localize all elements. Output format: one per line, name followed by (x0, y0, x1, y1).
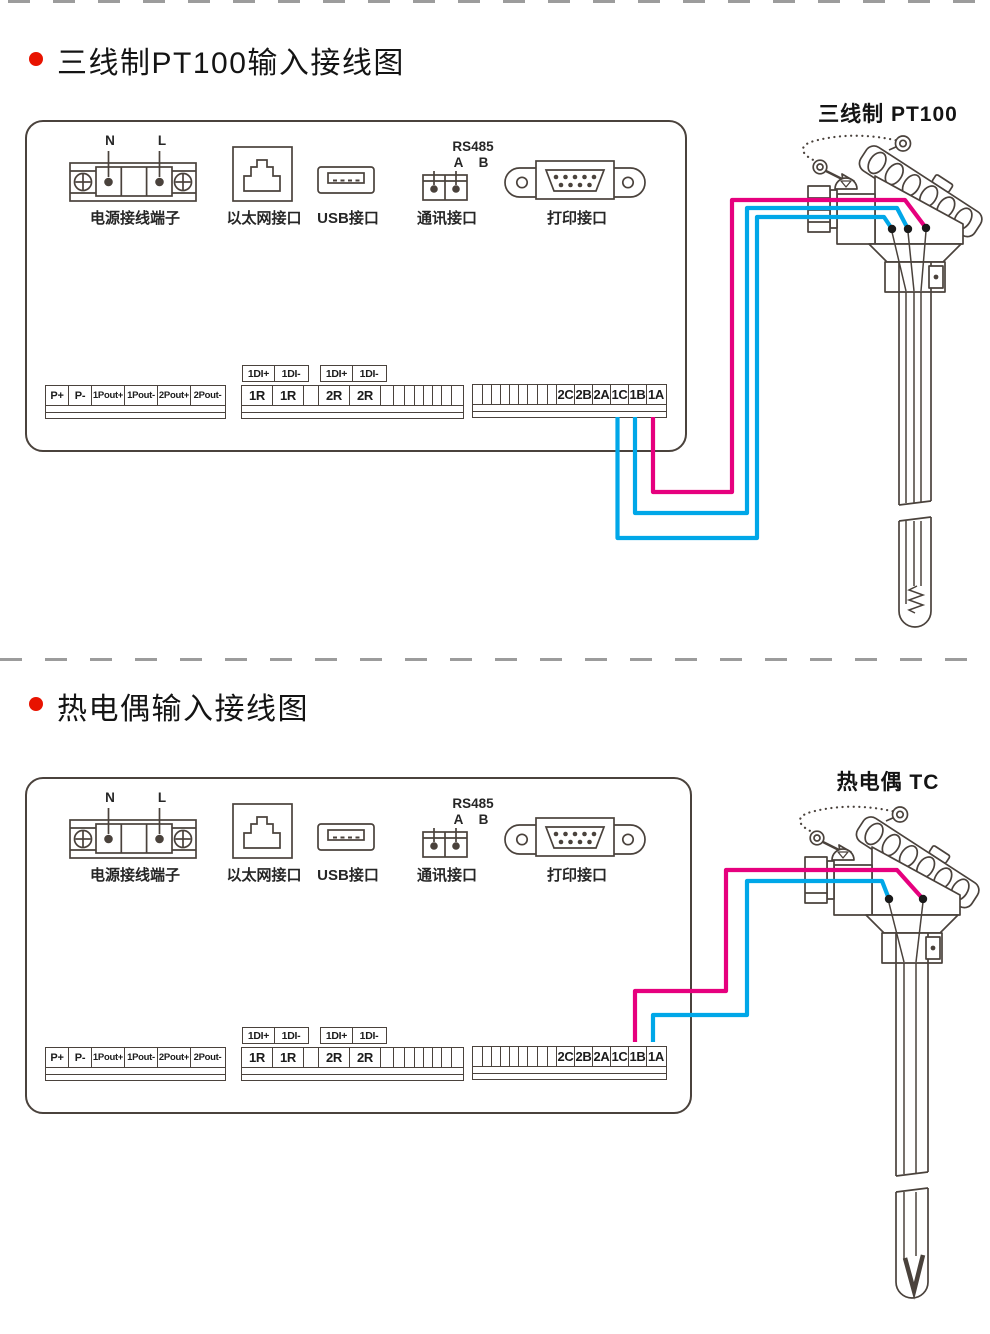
terminal-cell-blank (510, 1047, 519, 1066)
rs485-a-label: A (448, 155, 469, 170)
terminal-cell-blank (473, 1047, 483, 1066)
terminal-cell: 2A (593, 1047, 611, 1066)
terminal-cell-blank (415, 1048, 424, 1067)
terminal-cell-blank (415, 386, 424, 405)
terminal-cell-blank (483, 385, 492, 404)
terminal-cell: 2R (350, 386, 381, 405)
terminal-cell: 2Pout+ (158, 386, 191, 405)
terminal-cell-blank (510, 385, 519, 404)
terminal-cell-blank (424, 1048, 433, 1067)
strip-band (46, 412, 225, 416)
terminal-cell-blank (528, 385, 538, 404)
strip-band (46, 1067, 225, 1074)
sensor2-element-wires (889, 902, 923, 1291)
sensor1-head (803, 135, 990, 627)
terminal-cell-blank (452, 386, 462, 405)
terminal-cell: 2R (350, 1048, 381, 1067)
strip-band (473, 411, 666, 415)
terminal-cell-blank (501, 385, 510, 404)
di-header-cell: 1DI- (353, 366, 385, 381)
di-header-cell: 1DI+ (243, 366, 275, 381)
terminal-cell: 2Pout- (191, 386, 224, 405)
recorder-rear-panel-1: N L RS485 A B 电源接线端子 以太网接口 USB接口 通讯接口 打印… (25, 120, 687, 452)
terminal-cell-blank (442, 1048, 452, 1067)
rs485-b-label: B (473, 155, 494, 170)
sensor1-label: 三线制 PT100 (788, 98, 988, 128)
terminal-cell: 2A (593, 385, 611, 404)
terminal-cell: 2B (575, 385, 593, 404)
terminal-cell: 2Pout- (191, 1048, 224, 1067)
power-l-label: L (150, 133, 174, 148)
di-header-1: 1DI+ 1DI- (242, 365, 309, 382)
strip-band (242, 1067, 463, 1074)
terminal-cell: 1R (242, 386, 273, 405)
di-header-cell: 1DI- (275, 366, 307, 381)
terminal-cell-blank (394, 386, 405, 405)
di-header-1: 1DI+ 1DI- (242, 1027, 309, 1044)
terminal-cell-blank (548, 385, 557, 404)
terminal-strip-relay: 1R 1R 2R 2R (241, 1047, 464, 1081)
terminal-cell: 2C (557, 385, 575, 404)
terminal-cell-blank (492, 1047, 501, 1066)
di-header-cell: 1DI+ (243, 1028, 275, 1043)
terminal-cell-blank (381, 386, 394, 405)
terminal-cell: P- (69, 1048, 92, 1067)
terminal-cell-blank (433, 1048, 442, 1067)
terminal-cell: 1B (629, 385, 647, 404)
rs485-label: RS485 (443, 139, 503, 154)
terminal-strip-input: 2C 2B 2A 1C 1B 1A (472, 384, 667, 418)
terminal-cell-blank (519, 1047, 528, 1066)
di-header-2: 1DI+ 1DI- (320, 365, 387, 382)
strip-band (242, 412, 463, 416)
terminal-cell: 1R (273, 1048, 304, 1067)
sensor-terminal-dots (885, 224, 930, 903)
terminal-cell-blank (304, 386, 319, 405)
power-terminal-label: 电源接线端子 (60, 864, 210, 885)
terminal-cell: 1C (611, 385, 629, 404)
di-header-cell: 1DI+ (321, 1028, 353, 1043)
terminal-cell: 1C (611, 1047, 629, 1066)
power-n-label: N (98, 133, 122, 148)
terminal-cell-blank (473, 385, 483, 404)
recorder-rear-panel-2: N L RS485 A B 电源接线端子 以太网接口 USB接口 通讯接口 打印… (25, 777, 692, 1114)
print-port-label: 打印接口 (502, 207, 652, 228)
wire-1a-magenta (653, 200, 926, 492)
terminal-cell-blank (492, 385, 501, 404)
sensor2-label: 热电偶 TC (788, 766, 988, 796)
terminal-cell: P- (69, 386, 92, 405)
terminal-cell: 1Pout+ (92, 1048, 125, 1067)
rs485-a-label: A (448, 812, 469, 827)
sensor1-element-wires (892, 231, 926, 613)
terminal-strip-input: 2C 2B 2A 1C 1B 1A (472, 1046, 667, 1080)
di-header-cell: 1DI+ (321, 366, 353, 381)
rs485-label: RS485 (443, 796, 503, 811)
terminal-cell-blank (405, 386, 415, 405)
rtd-resistor-symbol (909, 586, 923, 613)
terminal-cell-blank (538, 1047, 548, 1066)
section2-bullet-icon (29, 697, 43, 711)
power-n-label: N (98, 790, 122, 805)
terminal-strip-power-out: P+ P- 1Pout+ 1Pout- 2Pout+ 2Pout- (45, 385, 226, 419)
comm-port-label: 通讯接口 (372, 207, 522, 228)
terminal-cell: 2C (557, 1047, 575, 1066)
terminal-cell: 2Pout+ (158, 1048, 191, 1067)
terminal-cell: 2R (319, 386, 350, 405)
terminal-cell: 1R (273, 386, 304, 405)
thermocouple-junction-symbol (905, 1255, 923, 1291)
top-dashed-border (8, 0, 982, 3)
terminal-cell: 1Pout- (125, 1048, 158, 1067)
terminal-cell-blank (452, 1048, 462, 1067)
terminal-cell-blank (433, 386, 442, 405)
section2-title: 热电偶输入接线图 (57, 684, 309, 728)
wiring-diagram-page: 三线制PT100输入接线图 热电偶输入接线图 三线制 PT100 热电偶 TC … (0, 0, 990, 1334)
rs485-b-label: B (473, 812, 494, 827)
terminal-strip-relay: 1R 1R 2R 2R (241, 385, 464, 419)
terminal-cell: 1Pout+ (92, 386, 125, 405)
strip-band (46, 405, 225, 412)
terminal-cell-blank (442, 386, 452, 405)
power-terminal-label: 电源接线端子 (60, 207, 210, 228)
terminal-cell-blank (538, 385, 548, 404)
terminal-cell: 2B (575, 1047, 593, 1066)
terminal-cell: 1A (647, 385, 665, 404)
terminal-cell: 2R (319, 1048, 350, 1067)
terminal-cell-blank (405, 1048, 415, 1067)
strip-band (473, 1073, 666, 1077)
terminal-cell: 1R (242, 1048, 273, 1067)
terminal-cell-blank (381, 1048, 394, 1067)
section1-title: 三线制PT100输入接线图 (57, 38, 405, 82)
terminal-cell-blank (519, 385, 528, 404)
strip-band (242, 405, 463, 412)
strip-band (473, 404, 666, 411)
di-header-2: 1DI+ 1DI- (320, 1027, 387, 1044)
strip-band (242, 1074, 463, 1078)
power-l-label: L (150, 790, 174, 805)
print-port-label: 打印接口 (502, 864, 652, 885)
terminal-cell-blank (304, 1048, 319, 1067)
strip-band (46, 1074, 225, 1078)
terminal-strip-power-out: P+ P- 1Pout+ 1Pout- 2Pout+ 2Pout- (45, 1047, 226, 1081)
terminal-cell-blank (501, 1047, 510, 1066)
comm-port-label: 通讯接口 (372, 864, 522, 885)
terminal-cell-blank (528, 1047, 538, 1066)
terminal-cell: P+ (46, 386, 69, 405)
terminal-cell-blank (394, 1048, 405, 1067)
terminal-cell-blank (483, 1047, 492, 1066)
sensor2-head (800, 806, 987, 1298)
di-header-cell: 1DI- (353, 1028, 385, 1043)
section-separator (0, 658, 990, 661)
strip-band (473, 1066, 666, 1073)
terminal-cell: 1Pout- (125, 386, 158, 405)
terminal-cell: 1A (647, 1047, 665, 1066)
terminal-cell: 1B (629, 1047, 647, 1066)
di-header-cell: 1DI- (275, 1028, 307, 1043)
terminal-cell: P+ (46, 1048, 69, 1067)
terminal-cell-blank (548, 1047, 557, 1066)
terminal-cell-blank (424, 386, 433, 405)
section1-bullet-icon (29, 52, 43, 66)
